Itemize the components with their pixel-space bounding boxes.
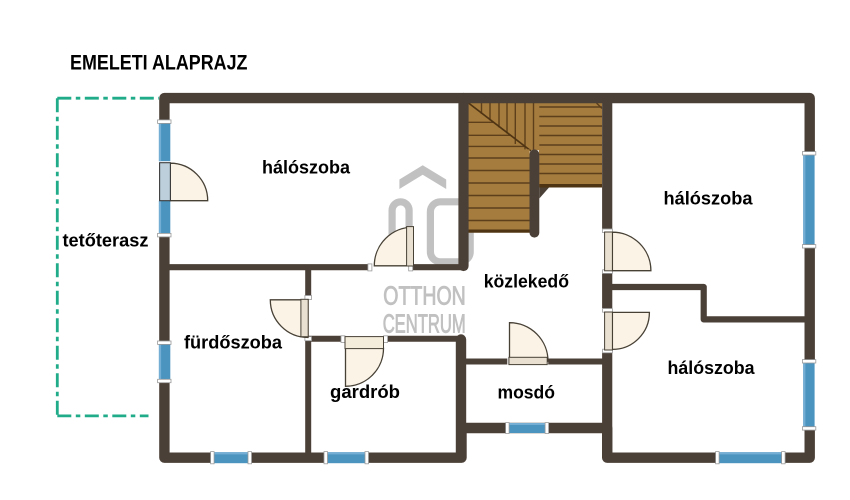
svg-text:fürdőszoba: fürdőszoba [184, 333, 283, 353]
svg-text:hálószoba: hálószoba [262, 157, 351, 177]
svg-text:OTTHON: OTTHON [383, 280, 466, 310]
svg-text:EMELETI ALAPRAJZ: EMELETI ALAPRAJZ [70, 51, 248, 75]
svg-text:közlekedő: közlekedő [484, 271, 569, 291]
svg-text:gardrób: gardrób [330, 382, 400, 402]
svg-text:hálószoba: hálószoba [668, 358, 756, 378]
svg-text:mosdó: mosdó [498, 383, 556, 403]
svg-text:CENTRUM: CENTRUM [383, 309, 466, 339]
svg-text:hálószoba: hálószoba [664, 189, 754, 209]
svg-text:tetőterasz: tetőterasz [63, 231, 149, 251]
